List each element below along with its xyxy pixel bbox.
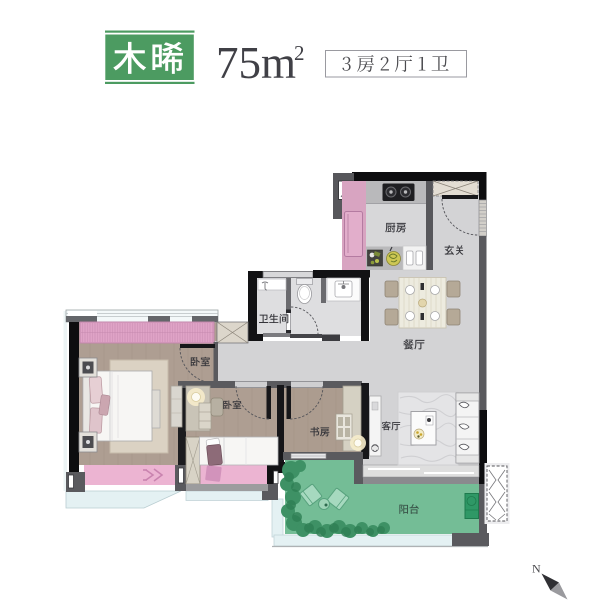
svg-text:75m: 75m: [216, 38, 296, 88]
svg-text:N: N: [532, 562, 541, 576]
svg-text:2: 2: [294, 41, 305, 65]
